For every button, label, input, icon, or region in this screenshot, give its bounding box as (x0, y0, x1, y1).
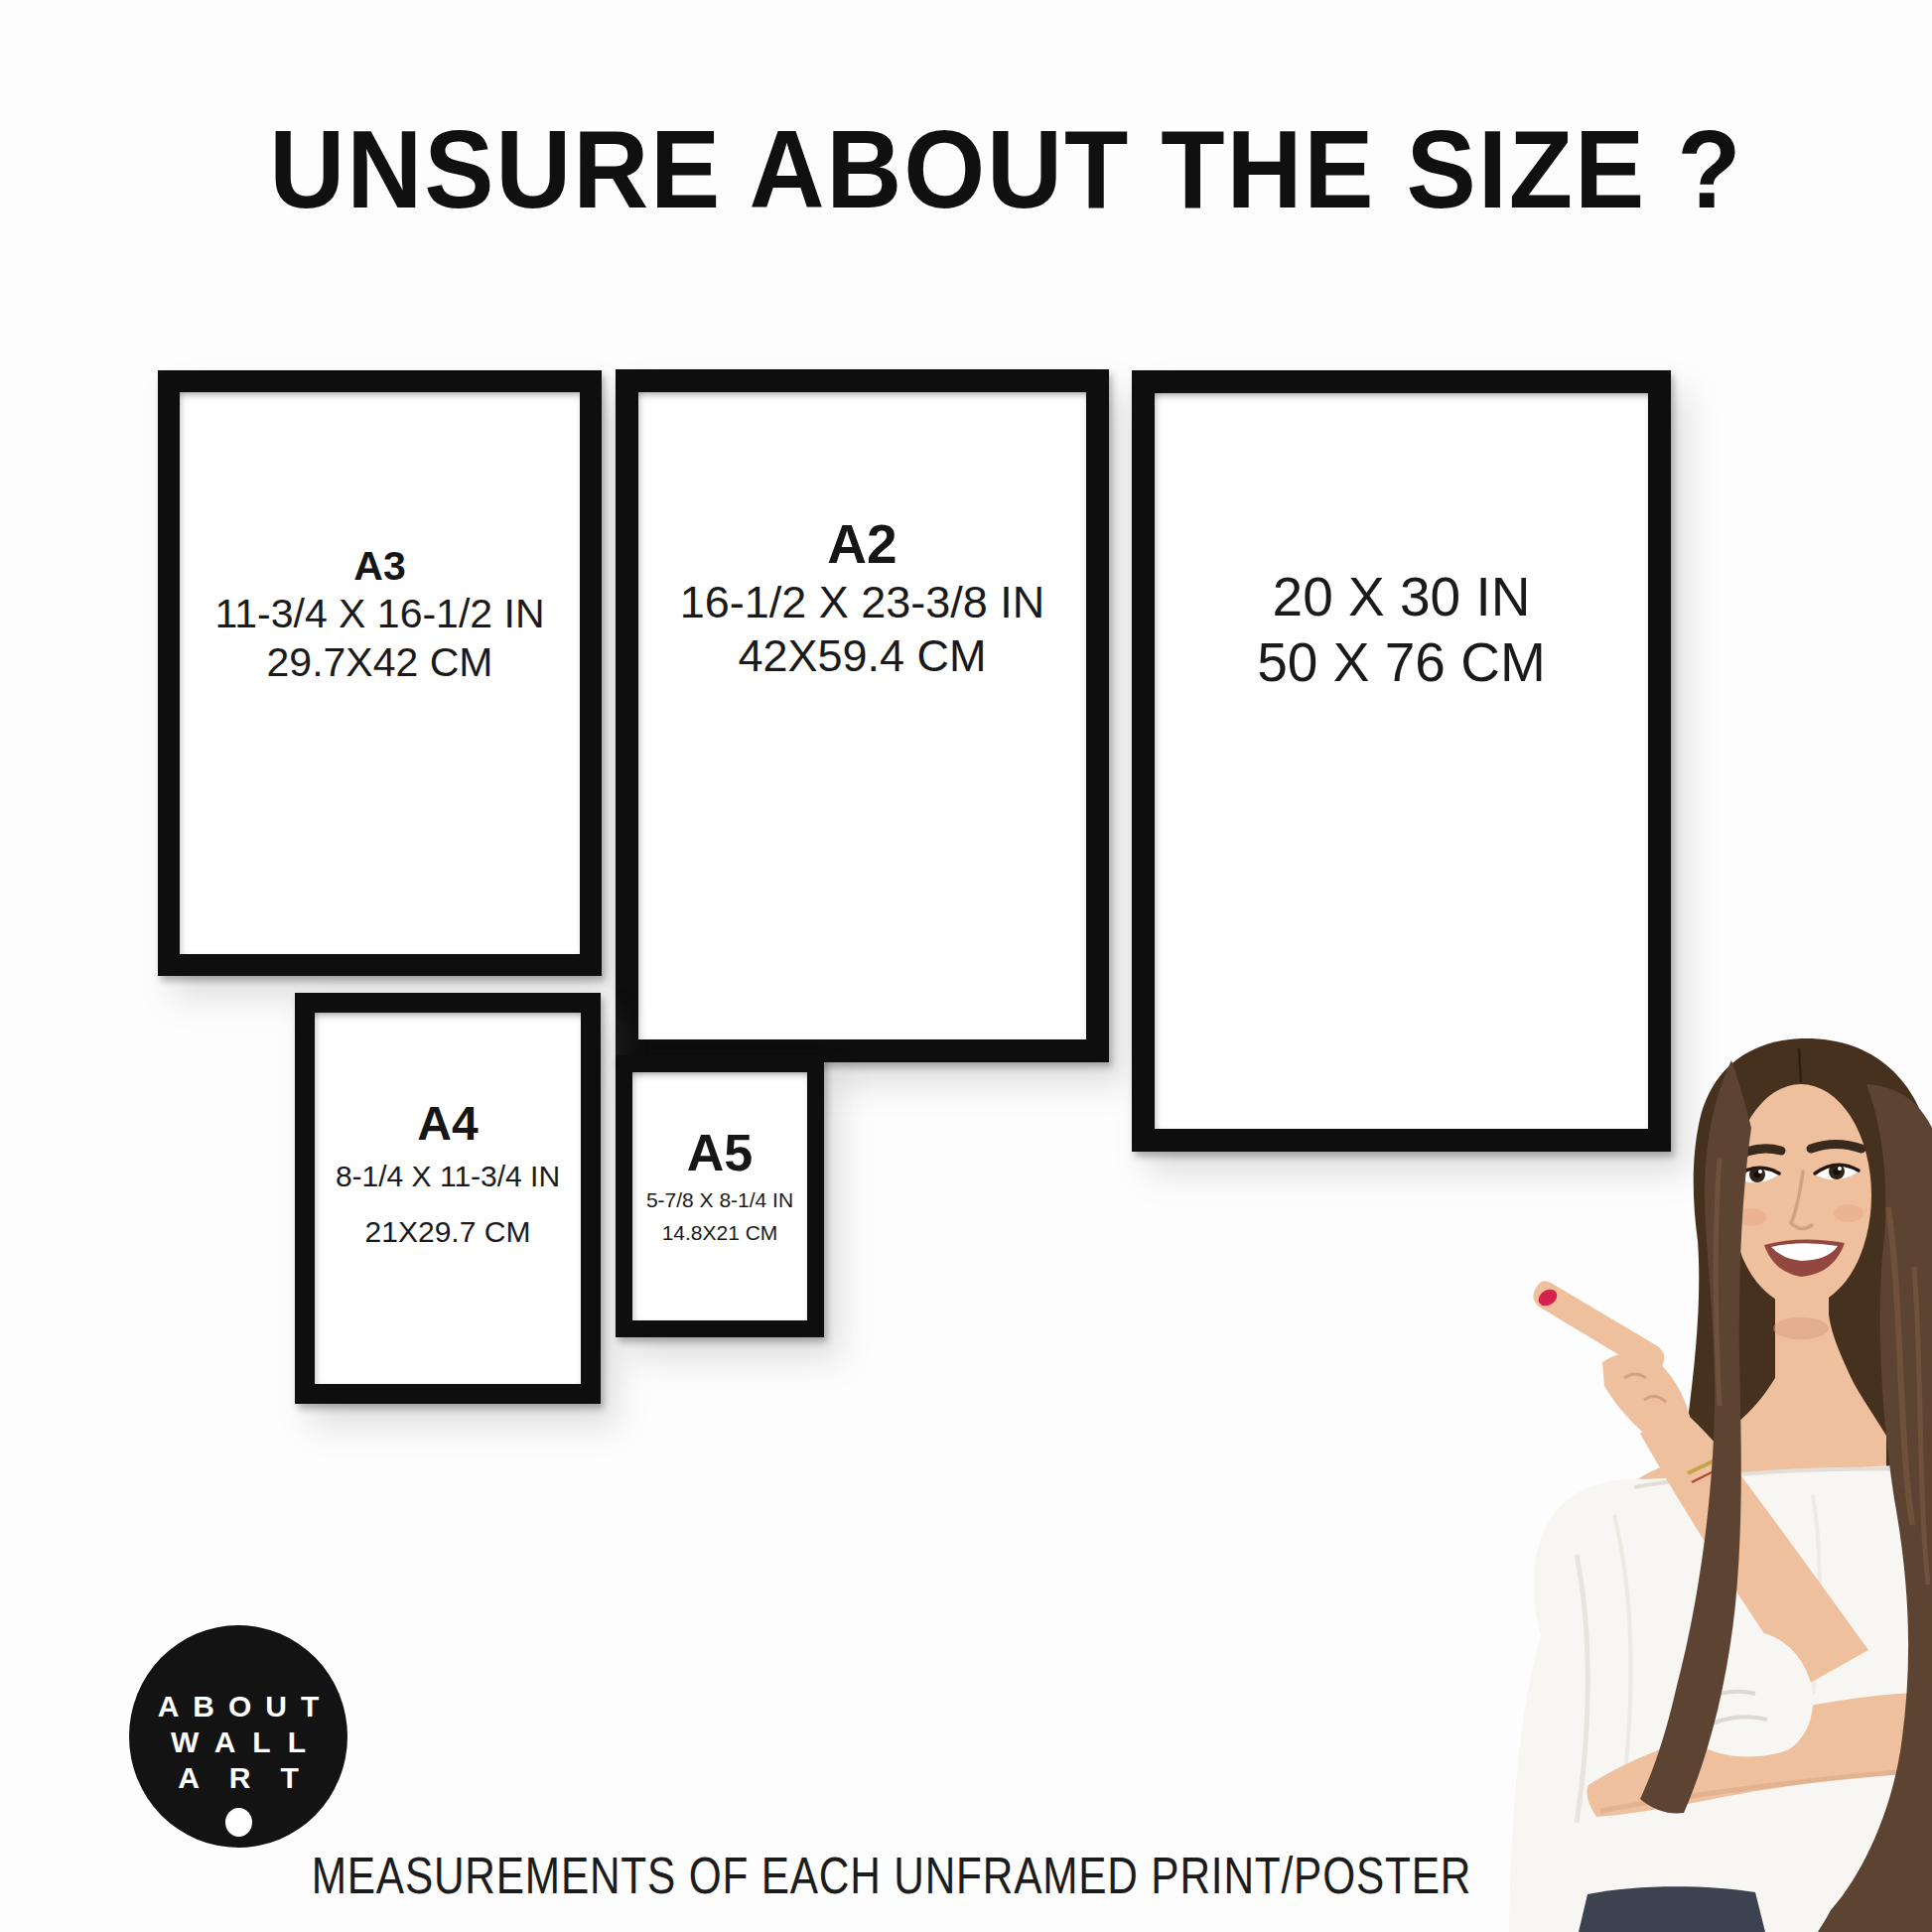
jeans (1579, 1886, 1765, 1932)
frame-a2: A2 16-1/2 X 23-3/8 IN 42X59.4 CM (616, 369, 1109, 1062)
frame-a3-label: A3 (353, 543, 405, 590)
frame-a5-inches: 5-7/8 X 8-1/4 IN (646, 1187, 793, 1212)
frame-a2-mat: A2 16-1/2 X 23-3/8 IN 42X59.4 CM (638, 392, 1086, 1039)
frame-a4-label: A4 (417, 1096, 478, 1151)
frame-20x30-cm: 50 X 76 CM (1257, 629, 1545, 695)
frame-a4-inches: 8-1/4 X 11-3/4 IN (336, 1159, 560, 1194)
footer-caption: MEASUREMENTS OF EACH UNFRAMED PRINT/POST… (312, 1847, 1471, 1905)
header: UNSURE ABOUT THE SIZE ? (0, 105, 1932, 233)
woman-photo (1485, 999, 1932, 1932)
frame-a5: A5 5-7/8 X 8-1/4 IN 14.8X21 CM (616, 1055, 824, 1337)
logo-dot-icon (225, 1808, 252, 1837)
frame-20x30-inches: 20 X 30 IN (1273, 564, 1531, 629)
woman-illustration (1509, 1038, 1932, 1932)
frame-a3: A3 11-3/4 X 16-1/2 IN 29.7X42 CM (158, 370, 602, 976)
frame-a2-inches: 16-1/2 X 23-3/8 IN (680, 576, 1045, 629)
frame-a4: A4 8-1/4 X 11-3/4 IN 21X29.7 CM (295, 993, 601, 1404)
frame-a5-mat: A5 5-7/8 X 8-1/4 IN 14.8X21 CM (632, 1072, 807, 1320)
frame-20x30-text: 20 X 30 IN 50 X 76 CM (1155, 393, 1648, 695)
frame-a4-cm: 21X29.7 CM (365, 1214, 531, 1250)
logo-line-1: ABOUT (144, 1689, 334, 1725)
frame-a3-inches: 11-3/4 X 16-1/2 IN (215, 590, 545, 638)
chin-shadow (1773, 1317, 1829, 1339)
frame-a4-mat: A4 8-1/4 X 11-3/4 IN 21X29.7 CM (315, 1013, 581, 1384)
brand-logo: ABOUT WALL ART (129, 1625, 347, 1848)
frame-a3-mat: A3 11-3/4 X 16-1/2 IN 29.7X42 CM (180, 392, 580, 954)
size-guide-image: UNSURE ABOUT THE SIZE ? A3 11-3/4 X 16-1… (0, 0, 1932, 1932)
frame-a2-cm: 42X59.4 CM (738, 629, 986, 683)
frame-a3-cm: 29.7X42 CM (267, 638, 493, 687)
page-title: UNSURE ABOUT THE SIZE ? (269, 105, 1742, 233)
logo-line-2: WALL (154, 1725, 323, 1760)
frame-a2-label: A2 (827, 513, 897, 576)
frame-a3-text: A3 11-3/4 X 16-1/2 IN 29.7X42 CM (180, 392, 580, 688)
logo-line-3: ART (148, 1760, 329, 1796)
frame-a2-text: A2 16-1/2 X 23-3/8 IN 42X59.4 CM (638, 392, 1086, 683)
frame-a4-text: A4 8-1/4 X 11-3/4 IN 21X29.7 CM (315, 1013, 581, 1250)
frame-a5-text: A5 5-7/8 X 8-1/4 IN 14.8X21 CM (632, 1072, 807, 1245)
frame-a5-cm: 14.8X21 CM (662, 1220, 778, 1245)
frame-a5-label: A5 (687, 1124, 753, 1183)
blush-right (1834, 1204, 1863, 1222)
